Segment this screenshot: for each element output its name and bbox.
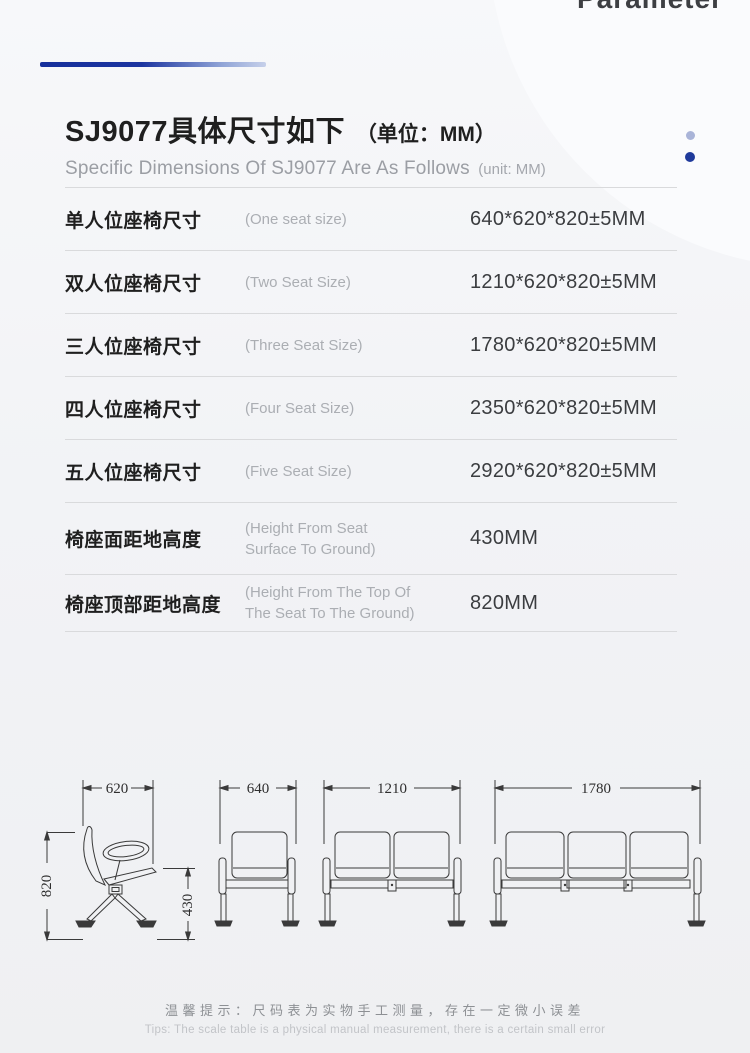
row-label-en: (Four Seat Size)	[245, 398, 470, 419]
table-row: 三人位座椅尺寸 (Three Seat Size) 1780*620*820±5…	[65, 314, 677, 377]
table-row: 四人位座椅尺寸 (Four Seat Size) 2350*620*820±5M…	[65, 377, 677, 440]
row-value: 2920*620*820±5MM	[470, 460, 677, 483]
previous-section-heading: Parameter	[577, 0, 723, 13]
row-value: 2350*620*820±5MM	[470, 397, 677, 420]
front-view-two-seat-drawing: 1210	[318, 772, 466, 937]
row-label-zh: 椅座顶部距地高度	[65, 590, 245, 617]
dim-label-one-seat-width: 640	[247, 781, 270, 797]
row-label-zh: 单人位座椅尺寸	[65, 206, 245, 233]
row-label-en: (Five Seat Size)	[245, 461, 470, 482]
row-label-en: (Two Seat Size)	[245, 272, 470, 293]
row-value: 430MM	[470, 527, 677, 550]
table-row: 五人位座椅尺寸 (Five Seat Size) 2920*620*820±5M…	[65, 440, 677, 503]
tips-text-zh: 温馨提示：尺码表为实物手工测量，存在一定微小误差	[0, 1000, 750, 1019]
tips-footer: 温馨提示：尺码表为实物手工测量，存在一定微小误差 Tips: The scale…	[0, 1000, 750, 1036]
row-label-zh: 椅座面距地高度	[65, 525, 245, 552]
page-subtitle-unit: (unit: MM)	[478, 161, 546, 178]
dim-label-two-seat-width: 1210	[377, 781, 407, 797]
dot-indicator-decoration	[684, 131, 696, 162]
dot-dark	[685, 152, 695, 162]
row-label-en: (Three Seat Size)	[245, 335, 470, 356]
dim-label-side-height: 820	[39, 875, 55, 898]
table-row: 椅座面距地高度 (Height From Seat Surface To Gro…	[65, 503, 677, 575]
row-value: 640*620*820±5MM	[470, 208, 677, 231]
technical-drawings: 620 820 430	[0, 772, 750, 957]
row-value: 1210*620*820±5MM	[470, 271, 677, 294]
accent-bar-decoration	[40, 62, 266, 67]
dim-label-side-width: 620	[106, 781, 129, 797]
row-label-zh: 双人位座椅尺寸	[65, 269, 245, 296]
page-title: SJ9077具体尺寸如下 （单位：MM）	[65, 108, 496, 150]
page-title-zh: SJ9077具体尺寸如下	[65, 116, 345, 148]
page-title-unit: （单位：MM）	[356, 123, 496, 146]
table-row: 双人位座椅尺寸 (Two Seat Size) 1210*620*820±5MM	[65, 251, 677, 314]
row-label-en: (Height From Seat Surface To Ground)	[245, 518, 470, 560]
page-subtitle-en: Specific Dimensions Of SJ9077 Are As Fol…	[65, 158, 470, 179]
spec-page: Parameter SJ9077具体尺寸如下 （单位：MM） Specific …	[0, 0, 750, 1053]
row-label-zh: 三人位座椅尺寸	[65, 332, 245, 359]
dot-light	[686, 131, 695, 140]
table-row: 单人位座椅尺寸 (One seat size) 640*620*820±5MM	[65, 188, 677, 251]
row-label-en: (One seat size)	[245, 209, 470, 230]
front-view-one-seat-drawing: 640	[212, 772, 302, 937]
side-view-drawing: 620 820 430	[25, 772, 205, 952]
tips-text-en: Tips: The scale table is a physical manu…	[0, 1024, 750, 1036]
dim-label-side-seat-height: 430	[180, 894, 196, 917]
dim-label-three-seat-width: 1780	[581, 781, 611, 797]
front-view-three-seat-drawing: 1780	[486, 772, 706, 937]
row-label-en: (Height From The Top Of The Seat To The …	[245, 582, 470, 624]
row-value: 1780*620*820±5MM	[470, 334, 677, 357]
row-label-zh: 四人位座椅尺寸	[65, 395, 245, 422]
table-row: 椅座顶部距地高度 (Height From The Top Of The Sea…	[65, 575, 677, 632]
row-label-zh: 五人位座椅尺寸	[65, 458, 245, 485]
dimension-table: 单人位座椅尺寸 (One seat size) 640*620*820±5MM …	[65, 187, 677, 632]
row-value: 820MM	[470, 592, 677, 615]
page-subtitle: Specific Dimensions Of SJ9077 Are As Fol…	[65, 158, 546, 180]
